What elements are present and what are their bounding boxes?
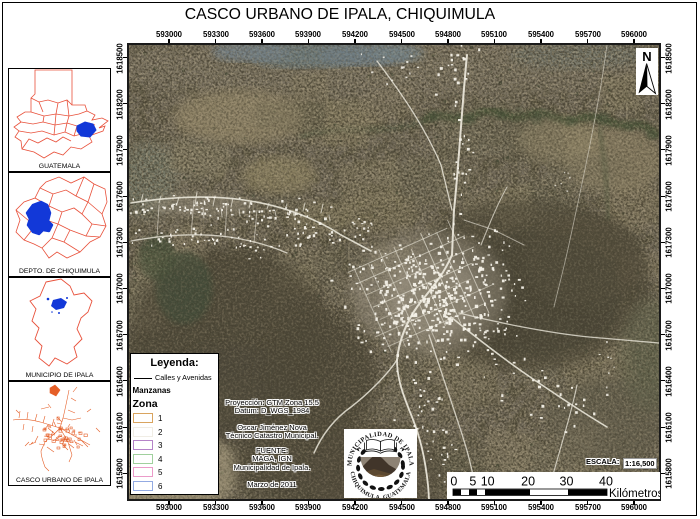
svg-text:40: 40 xyxy=(599,474,613,488)
svg-text:5: 5 xyxy=(469,474,476,488)
svg-text:Kilómetros: Kilómetros xyxy=(609,488,660,499)
svg-text:N: N xyxy=(642,49,651,64)
svg-text:20: 20 xyxy=(521,474,535,488)
svg-text:30: 30 xyxy=(560,474,574,488)
svg-text:10: 10 xyxy=(481,474,495,488)
svg-text:0: 0 xyxy=(450,474,457,488)
